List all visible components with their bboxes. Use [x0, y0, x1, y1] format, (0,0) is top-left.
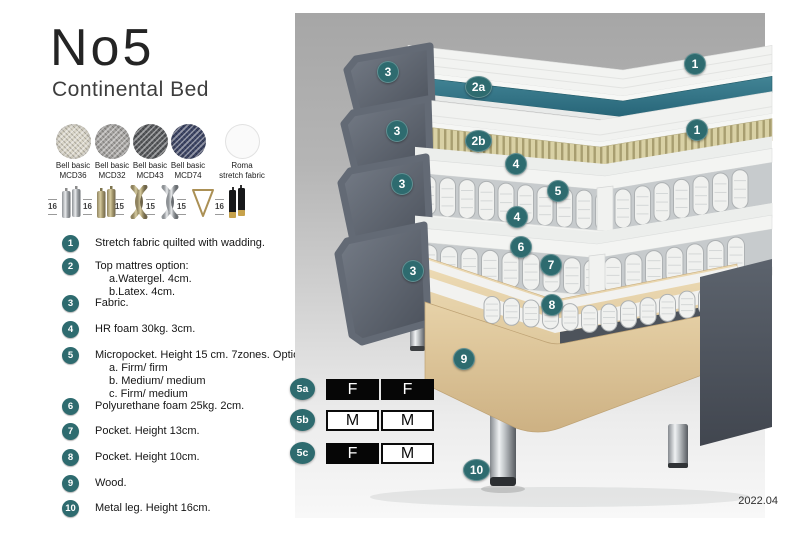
firmness-label: 5c [290, 442, 315, 464]
legend-text: Pocket. Height 10cm. [95, 451, 200, 466]
callout-2a: 2a [465, 76, 492, 98]
legend-text: Pocket. Height 13cm. [95, 425, 200, 440]
fabric-label: Romastretch fabric [215, 161, 269, 180]
fabric-swatch-mcd43 [133, 124, 168, 159]
callout-1: 1 [686, 119, 708, 141]
legend-text: Stretch fabric quilted with wadding. [95, 237, 265, 252]
ground-shadow [370, 487, 750, 507]
corner-post [597, 186, 613, 233]
firmness-label: 5b [290, 409, 315, 431]
callout-3: 3 [402, 260, 424, 282]
leg-option-cylinder-black-gold: 16 [213, 185, 248, 219]
firmness-cell: F [326, 443, 379, 464]
legend-item-6: 6 Polyurethane foam 25kg. 2cm. [62, 400, 244, 415]
fabric-swatch-mcd74 [171, 124, 206, 159]
legend-item-8: 8 Pocket. Height 10cm. [62, 451, 200, 466]
legend-item-5: 5 Micropocket. Height 15 cm. 7zones. Opt… [62, 349, 308, 401]
legend-number: 4 [62, 321, 79, 338]
legend-number: 6 [62, 398, 79, 415]
callout-4: 4 [505, 153, 527, 175]
legend-number: 8 [62, 449, 79, 466]
leg-height-label: 16 [48, 202, 57, 212]
firmness-cell: F [326, 379, 379, 400]
version-stamp: 2022.04 [700, 495, 778, 507]
firmness-row-5c: 5c F M [290, 442, 434, 464]
fabric-swatch-mcd32 [95, 124, 130, 159]
callout-3: 3 [377, 61, 399, 83]
leg-height-label: 15 [115, 202, 124, 212]
callout-7: 7 [540, 254, 562, 276]
legend-number: 1 [62, 235, 79, 252]
legend-item-2: 2 Top mattres option: a.Watergel. 4cm. b… [62, 260, 192, 299]
legend-item-4: 4 HR foam 30kg. 3cm. [62, 323, 195, 338]
legend-number: 9 [62, 475, 79, 492]
leg-height-label: 15 [146, 202, 155, 212]
legend-text: Metal leg. Height 16cm. [95, 502, 211, 517]
legend-text: HR foam 30kg. 3cm. [95, 323, 195, 338]
legend-item-3: 3 Fabric. [62, 297, 129, 312]
legend-text: Fabric. [95, 297, 129, 312]
leg-height-label: 15 [177, 202, 186, 212]
leg-option-hairpin: 15 [175, 185, 216, 219]
callout-10: 10 [463, 459, 490, 481]
leg-height-label: 16 [215, 202, 224, 212]
callout-3: 3 [386, 120, 408, 142]
legend-item-10: 10 Metal leg. Height 16cm. [62, 502, 211, 517]
fabric-label: Bell basicMCD74 [161, 161, 215, 180]
legend-item-1: 1 Stretch fabric quilted with wadding. [62, 237, 265, 252]
fabric-side-panel [338, 225, 428, 342]
firmness-cell: F [381, 379, 434, 400]
callout-8: 8 [541, 294, 563, 316]
callout-2b: 2b [465, 130, 492, 152]
page-subtitle: Continental Bed [52, 78, 209, 102]
legend-item-9: 9 Wood. [62, 477, 127, 492]
leg-height-label: 16 [83, 202, 92, 212]
page-title: No5 [50, 18, 154, 78]
product-sheet: No5 Continental Bed Bell basicMCD36 Bell… [0, 0, 800, 533]
callout-5: 5 [547, 180, 569, 202]
base-fabric-drape [700, 259, 772, 446]
firmness-row-5a: 5a F F [290, 378, 434, 400]
legend-text: Wood. [95, 477, 127, 492]
callout-1: 1 [684, 53, 706, 75]
firmness-row-5b: 5b M M [290, 409, 434, 431]
legend-number: 10 [62, 500, 79, 517]
legend-text: Top mattres option: a.Watergel. 4cm. b.L… [95, 260, 192, 299]
leg-option-cylinder-silver: 16 [46, 185, 84, 219]
legend-number: 2 [62, 258, 79, 275]
firmness-cell: M [381, 410, 434, 431]
legend-number: 3 [62, 295, 79, 312]
callout-6: 6 [510, 236, 532, 258]
legend-text: Polyurethane foam 25kg. 2cm. [95, 400, 244, 415]
legend-item-7: 7 Pocket. Height 13cm. [62, 425, 200, 440]
legend-number: 5 [62, 347, 79, 364]
firmness-cell: M [326, 410, 379, 431]
legend-text: Micropocket. Height 15 cm. 7zones. Optio… [95, 349, 308, 401]
fabric-swatch-mcd36 [56, 124, 91, 159]
fabric-swatch-roma [225, 124, 260, 159]
firmness-cell: M [381, 443, 434, 464]
cylinder-leg-icon [228, 185, 248, 219]
callout-9: 9 [453, 348, 475, 370]
metal-leg-right [668, 424, 688, 468]
firmness-label: 5a [290, 378, 315, 400]
callout-3: 3 [391, 173, 413, 195]
callout-4: 4 [506, 206, 528, 228]
legend-number: 7 [62, 423, 79, 440]
